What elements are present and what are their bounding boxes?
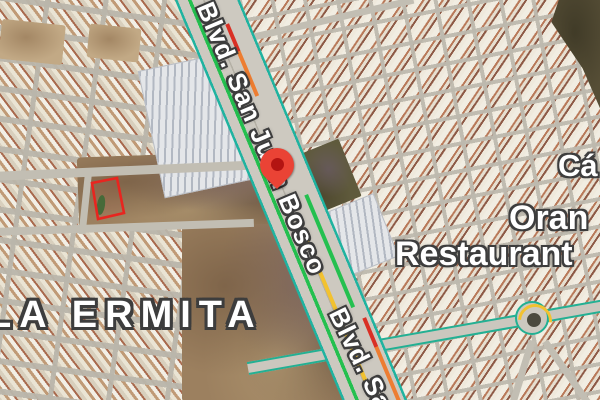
parcel-outline[interactable]	[92, 178, 124, 219]
satellite-map-canvas[interactable]: Blvd. San Juan Bosco Blvd. Sa LA ERMITA …	[0, 0, 600, 400]
neighborhood-label: LA ERMITA	[0, 296, 263, 336]
poi-label-line2[interactable]: Restaurant	[395, 237, 573, 273]
location-pin[interactable]	[259, 147, 295, 191]
poi-label-line1[interactable]: Oran	[509, 201, 588, 237]
pin-inner-circle	[271, 158, 284, 171]
street-label-right-edge: Cá	[558, 150, 598, 183]
